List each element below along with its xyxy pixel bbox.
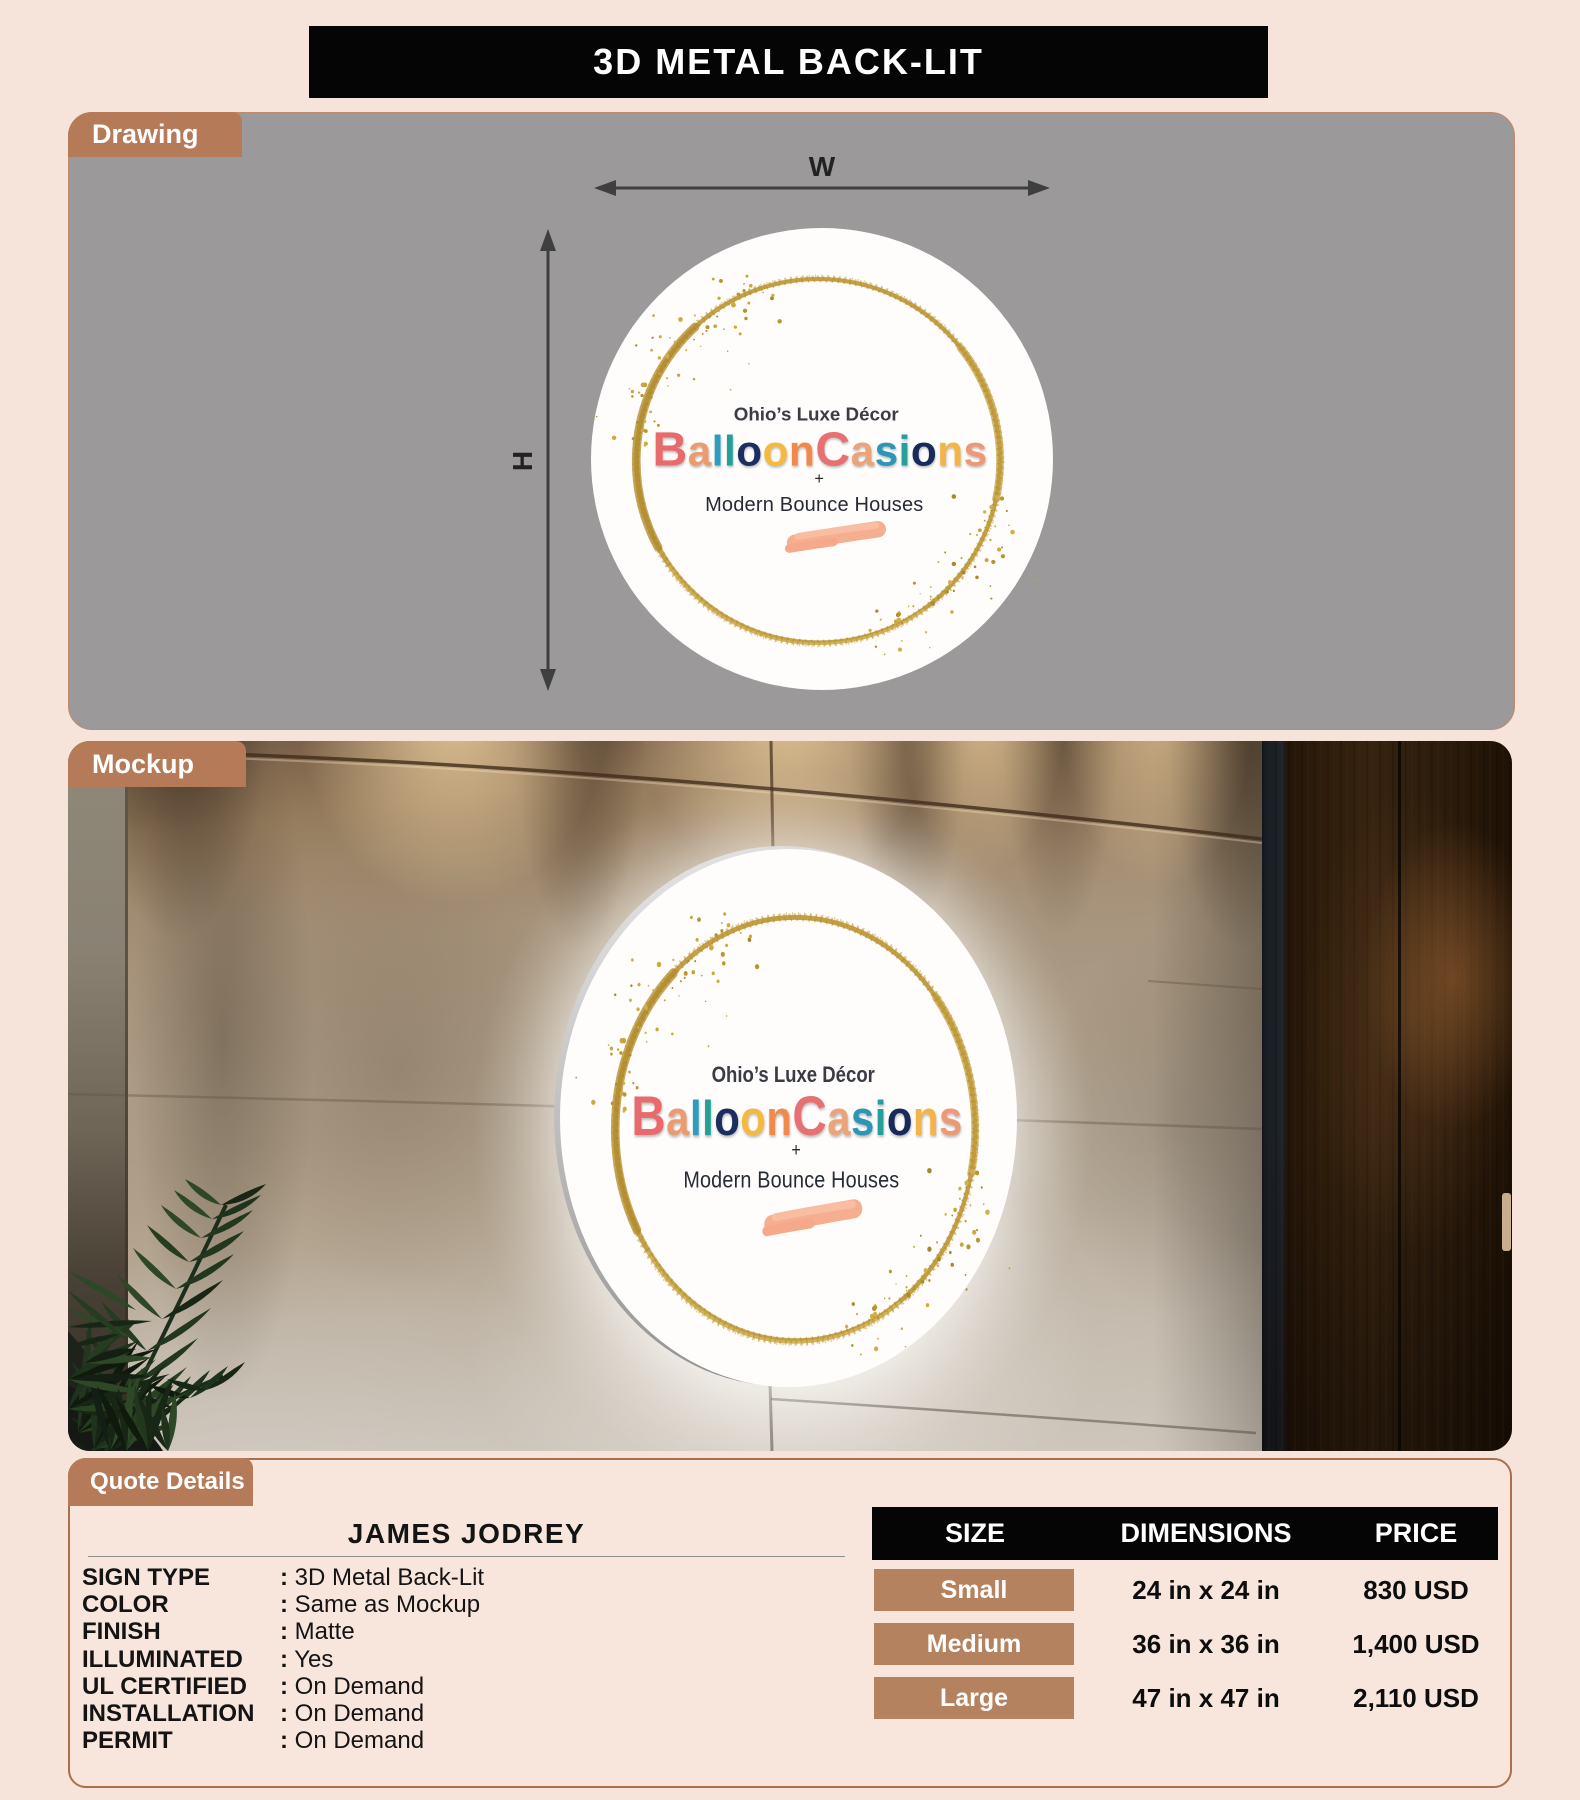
svg-text:H: H <box>507 451 538 471</box>
svg-text:W: W <box>809 151 836 182</box>
